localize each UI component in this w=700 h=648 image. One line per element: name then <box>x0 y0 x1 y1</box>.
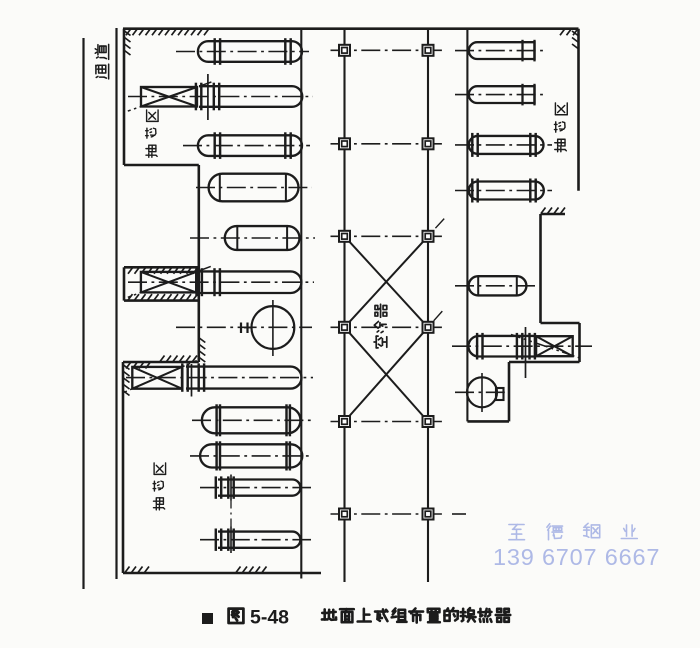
svg-text:5-48: 5-48 <box>250 607 289 629</box>
svg-text:139 6707 6667: 139 6707 6667 <box>493 544 660 570</box>
